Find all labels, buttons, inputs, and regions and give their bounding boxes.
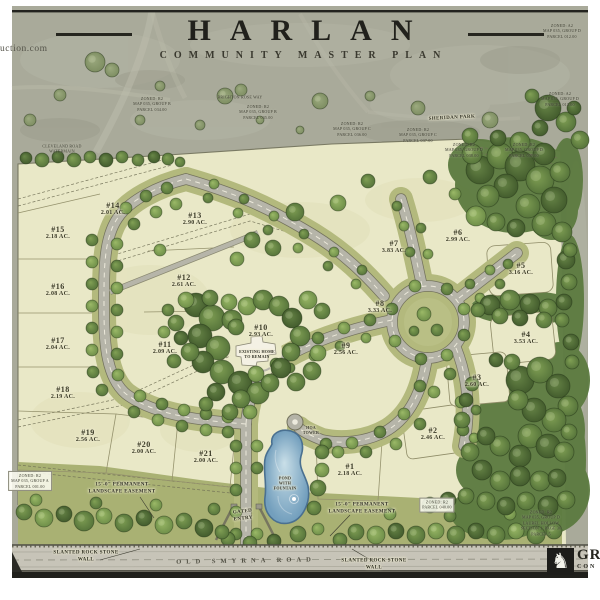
builder-logo-line1: GR — [577, 548, 600, 564]
bottom-frame-band — [12, 572, 588, 578]
site-plan-map — [0, 0, 600, 600]
fountain-icon — [292, 497, 296, 501]
builder-logo-line2: CON — [577, 564, 600, 570]
top-frame-rule — [12, 10, 588, 12]
builder-logo-text: GR CON — [577, 548, 600, 570]
pond — [264, 430, 308, 523]
plan-subtitle: COMMUNITY MASTER PLAN — [0, 50, 600, 61]
builder-logo: ♞ GR CON — [547, 548, 600, 575]
bottom-road — [12, 545, 588, 572]
master-plan-page: HARLAN COMMUNITY MASTER PLAN uction.com … — [0, 0, 600, 600]
plan-title: HARLAN — [0, 14, 600, 48]
website-fragment: uction.com — [0, 44, 47, 54]
hoa-tower — [287, 414, 303, 430]
griffin-crest-icon: ♞ — [547, 548, 574, 575]
